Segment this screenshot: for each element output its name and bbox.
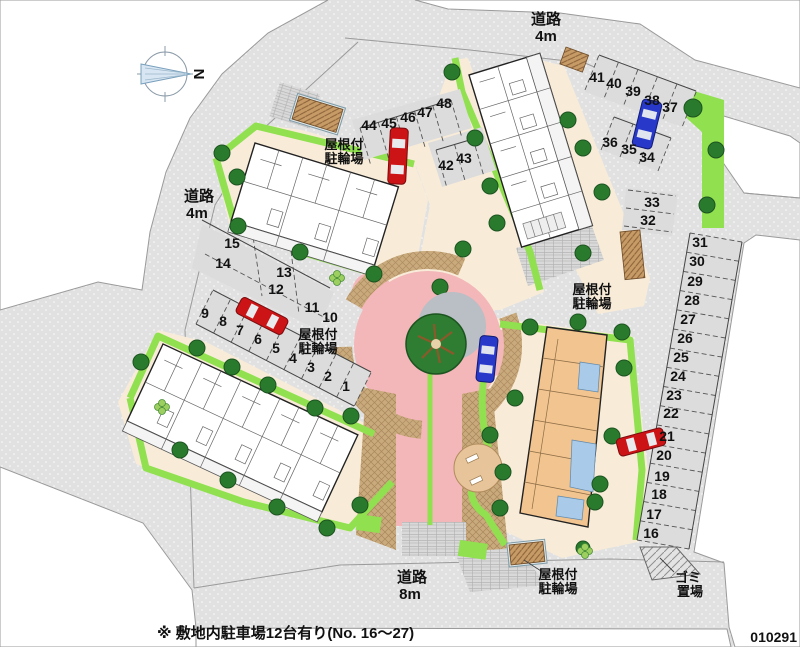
stall-number: 31	[692, 234, 708, 250]
plan-id: 010291	[750, 629, 797, 645]
stall-number: 14	[215, 255, 231, 271]
bike-parking-label-left-1: 屋根付	[298, 327, 337, 342]
stall-number: 7	[236, 322, 244, 338]
road-label-top-1: 道路	[531, 10, 562, 28]
stall-number: 39	[625, 83, 641, 99]
terrace	[454, 444, 502, 492]
bike-parking-label-top-1: 屋根付	[324, 137, 363, 152]
stall-number: 28	[684, 292, 700, 308]
stall-number: 48	[436, 95, 452, 111]
stall-number: 5	[272, 340, 280, 356]
site-plan-svg: N 1 2 3 4 5 6 7 8 9 10 11 12 13 14 15 16…	[0, 0, 800, 647]
stall-number: 45	[381, 115, 397, 131]
stall-number: 20	[656, 447, 672, 463]
stall-number: 2	[324, 368, 332, 384]
bike-parking-label-right-2: 駐輪場	[572, 296, 611, 311]
road-label-top-2: 4m	[535, 28, 557, 45]
bike-shed-bottom	[507, 539, 547, 567]
stall-number: 32	[640, 212, 656, 228]
stall-number: 6	[254, 331, 262, 347]
stall-number: 18	[651, 486, 667, 502]
stall-number: 19	[654, 468, 670, 484]
stall-number: 23	[666, 387, 682, 403]
road-label-left-1: 道路	[184, 187, 215, 205]
stall-number: 16	[643, 525, 659, 541]
stall-number: 25	[673, 349, 689, 365]
stall-number: 36	[602, 134, 618, 150]
stall-number: 10	[322, 309, 338, 325]
bike-parking-label-right-1: 屋根付	[572, 282, 611, 297]
stall-number: 24	[670, 368, 686, 384]
stall-number: 37	[662, 99, 678, 115]
stall-number: 4	[289, 350, 297, 366]
stall-number: 30	[689, 253, 705, 269]
stall-number: 34	[639, 149, 655, 165]
stall-number: 41	[589, 69, 605, 85]
stall-number: 44	[361, 117, 377, 133]
stall-number: 42	[438, 157, 454, 173]
road-label-bottom-2: 8m	[399, 586, 421, 603]
road-label-left-2: 4m	[186, 205, 208, 222]
stall-number: 12	[268, 281, 284, 297]
road-label-bottom-1: 道路	[397, 568, 428, 586]
bike-parking-label-left-2: 駐輪場	[298, 341, 337, 356]
stall-number: 3	[307, 359, 315, 375]
stall-number: 35	[621, 141, 637, 157]
brick-walk-2	[402, 522, 466, 556]
bike-parking-label-bottom-2: 駐輪場	[538, 581, 577, 596]
stall-number: 46	[400, 109, 416, 125]
stall-number: 15	[224, 235, 240, 251]
stall-number: 29	[687, 273, 703, 289]
stall-number: 22	[663, 405, 679, 421]
site-plan-map: N 1 2 3 4 5 6 7 8 9 10 11 12 13 14 15 16…	[0, 0, 800, 647]
stall-number: 27	[680, 311, 696, 327]
stall-number: 38	[644, 92, 660, 108]
garbage-label-2: 置場	[677, 584, 703, 599]
stall-number: 8	[219, 313, 227, 329]
compass-letter: N	[190, 69, 207, 80]
stall-number: 17	[646, 506, 662, 522]
car-red-stall46	[388, 128, 409, 185]
footnote: ※ 敷地内駐車場12台有り(No. 16～27)	[157, 624, 414, 642]
stall-number: 40	[606, 75, 622, 91]
stall-number: 26	[677, 330, 693, 346]
stall-number: 1	[342, 378, 350, 394]
stall-number: 47	[417, 104, 433, 120]
bike-parking-label-bottom-1: 屋根付	[538, 567, 577, 582]
stall-number: 11	[305, 299, 320, 315]
stall-number: 33	[644, 194, 660, 210]
stall-number: 21	[659, 428, 675, 444]
stall-number: 43	[456, 150, 472, 166]
stall-number: 9	[201, 305, 209, 321]
garbage-label-1: ゴミ	[675, 570, 701, 585]
bike-parking-label-top-2: 駐輪場	[324, 151, 363, 166]
stall-number: 13	[276, 264, 292, 280]
